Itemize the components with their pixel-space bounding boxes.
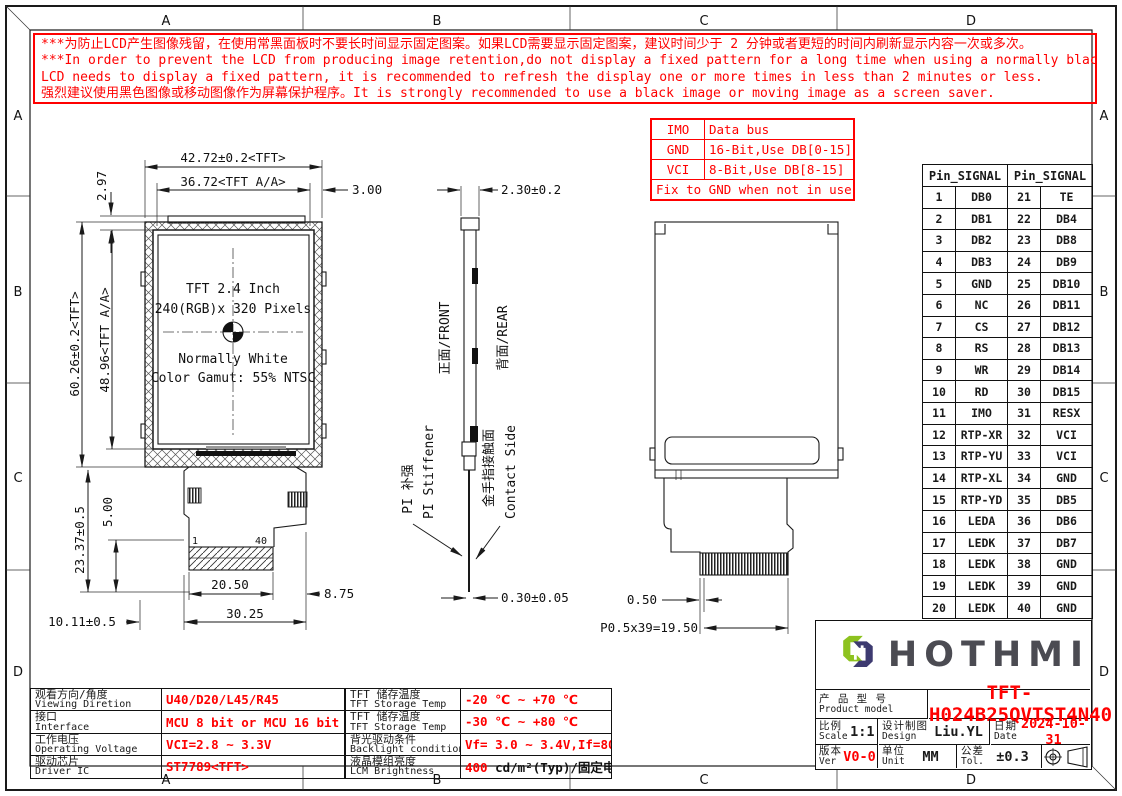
dim-width-tft: 42.72±0.2<TFT> <box>180 150 285 165</box>
unit-cell: 单位 Unit MM <box>879 745 957 768</box>
pin-signal-cell: DB7 <box>1041 532 1093 554</box>
tolerance-value: ±0.3 <box>984 749 1041 765</box>
pin-signal-cell: DB6 <box>1041 510 1093 532</box>
table-row: 3 DB2 23 DB8 <box>923 230 1093 252</box>
pin-signal-cell: LEDK <box>956 532 1008 554</box>
product-label-en: Product model <box>819 705 893 715</box>
spec-label-en: Viewing Diretion <box>35 700 157 710</box>
version-value: V0-0 <box>842 749 877 765</box>
pin-signal-cell: DB14 <box>1041 359 1093 381</box>
spec-label-en: TFT Storage Temp <box>350 723 456 733</box>
pin-number-cell: 28 <box>1008 338 1041 360</box>
warning-line: ***为防止LCD产生图像残留，在使用常黑面板时不要长时间显示固定图案。如果LC… <box>41 37 1089 53</box>
pin-number-cell: 35 <box>1008 489 1041 511</box>
pin-signal-cell: LEDK <box>956 575 1008 597</box>
design-cell: 设计制图 Design Liu.YL <box>879 719 990 745</box>
pin-number-cell: 31 <box>1008 402 1041 424</box>
spec-value-red: 400 <box>465 760 488 775</box>
spec-label-cn: TFT 储存温度 <box>350 711 456 722</box>
zone-label-right-b: B <box>1100 285 1109 300</box>
pin-signal-cell: VCI <box>1041 424 1093 446</box>
spec-label-cell: 观看方向/角度 Viewing Diretion <box>31 689 162 711</box>
pin-number-cell: 8 <box>923 338 956 360</box>
zone-label-top-c: C <box>699 14 708 29</box>
design-label-en: Design <box>882 732 928 742</box>
date-cell: 日期 Date 2024-10-31 <box>991 719 1090 745</box>
imo-footer-cell: Fix to GND when not in use. <box>651 180 854 201</box>
pin-number-cell: 32 <box>1008 424 1041 446</box>
spec-value-black: cd/m²(Typ)/固定电流测试 <box>488 760 612 775</box>
pin-number-cell: 10 <box>923 381 956 403</box>
pin-number-cell: 39 <box>1008 575 1041 597</box>
dim-connector-offset: 5.00 <box>100 497 115 527</box>
pin-signal-cell: RS <box>956 338 1008 360</box>
pin-number-cell: 26 <box>1008 294 1041 316</box>
version-label-en: Ver <box>819 757 842 767</box>
table-row: TFT 储存温度 TFT Storage Temp -30 ℃ ~ +80 ℃ <box>346 711 612 733</box>
warning-line: LCD needs to display a fixed pattern, it… <box>41 70 1089 86</box>
projection-symbol-cell <box>1043 745 1090 768</box>
front-view: TFT 2.4 Inch 240(RGB)x 320 Pixels Normal… <box>141 216 326 570</box>
pin-signal-cell: LEDK <box>956 554 1008 576</box>
engineering-drawing-page: { "colors": {"red": "#ff0000", "line": "… <box>0 0 1122 796</box>
table-row: 12 RTP-XR 32 VCI <box>923 424 1093 446</box>
pin-signal-cell: GND <box>1041 467 1093 489</box>
pin-number-cell: 18 <box>923 554 956 576</box>
dim-fpc-thickness: 0.30±0.05 <box>501 590 569 605</box>
pin-table-header-left: Pin_SIGNAL <box>923 165 1008 187</box>
dim-connector-width: 20.50 <box>211 577 249 592</box>
dim-pin-pitch: 0.50 <box>627 592 657 607</box>
pin-first-label: 1 <box>192 536 198 547</box>
table-row: 工作电压 Operating Voltage VCI=2.8 ~ 3.3V <box>31 733 345 755</box>
pin-signal-cell: WR <box>956 359 1008 381</box>
zone-label-left-a: A <box>14 109 23 124</box>
spec-value-cell: ST7789<TFT> <box>162 756 345 778</box>
pin-signal-cell: RTP-XR <box>956 424 1008 446</box>
zone-label-top-d: D <box>966 14 976 29</box>
version-cell: 版本 Ver V0-0 <box>816 745 878 768</box>
spec-value-cell: U40/D20/L45/R45 <box>162 689 345 711</box>
pin-number-cell: 21 <box>1008 187 1041 209</box>
pin-signal-cell: DB0 <box>956 187 1008 209</box>
table-row: 15 RTP-YD 35 DB5 <box>923 489 1093 511</box>
zone-label-right-c: C <box>1099 471 1108 486</box>
pin-number-cell: 20 <box>923 597 956 619</box>
table-row: 液晶模组亮度 LCM Brightness 400 cd/m²(Typ)/固定电… <box>346 756 612 778</box>
pin-signal-cell: VCI <box>1041 446 1093 468</box>
table-row: 9 WR 29 DB14 <box>923 359 1093 381</box>
pin-signal-cell: RTP-XL <box>956 467 1008 489</box>
date-label-en: Date <box>994 732 1017 742</box>
pin-signal-cell: DB4 <box>1041 208 1093 230</box>
pin-number-cell: 15 <box>923 489 956 511</box>
pin-number-cell: 36 <box>1008 510 1041 532</box>
pi-stiffener-label-cn: PI 补强 <box>401 464 416 513</box>
imo-databus-table: IMO Data bus GND 16-Bit,Use DB[0-15] VCI… <box>650 118 855 201</box>
spec-label-cell: 背光驱动条件 Backlight conditions <box>346 733 461 755</box>
tolerance-label-en: Tol. <box>961 757 984 767</box>
pin-signal-cell: RESX <box>1041 402 1093 424</box>
dim-top-margin: 2.97 <box>94 171 109 201</box>
spec-value-cell: -20 ℃ ~ +70 ℃ <box>461 689 612 711</box>
product-label-cn: 产 品 型 号 <box>819 694 893 705</box>
table-row: 11 IMO 31 RESX <box>923 402 1093 424</box>
pin-number-cell: 12 <box>923 424 956 446</box>
screen-spec-line: Color Gamut: 55% NTSC <box>151 371 315 386</box>
table-row: 接口 Interface MCU 8 bit or MCU 16 bit <box>31 711 345 733</box>
spec-label-cn: 接口 <box>35 711 157 722</box>
pin-signal-cell: GND <box>1041 597 1093 619</box>
table-row: 1 DB0 21 TE <box>923 187 1093 209</box>
dim-thickness: 2.30±0.2 <box>501 182 561 197</box>
imo-value-cell: 8-Bit,Use DB[8-15] <box>705 160 855 180</box>
pin-signal-cell: DB11 <box>1041 294 1093 316</box>
imo-key-cell: IMO <box>651 119 705 140</box>
designer-value: Liu.YL <box>928 724 989 740</box>
table-row: 10 RD 30 DB15 <box>923 381 1093 403</box>
pi-stiffener-label-en: PI Stiffener <box>422 425 437 519</box>
pin-signal-cell: DB9 <box>1041 251 1093 273</box>
spec-value-cell: 400 cd/m²(Typ)/固定电流测试 <box>461 756 612 778</box>
table-row: 2 DB1 22 DB4 <box>923 208 1093 230</box>
zone-label-right-d: D <box>1099 665 1109 680</box>
pin-number-cell: 1 <box>923 187 956 209</box>
pin-number-cell: 17 <box>923 532 956 554</box>
table-row: 7 CS 27 DB12 <box>923 316 1093 338</box>
contact-side-label-en: Contact Side <box>504 425 519 519</box>
brand-name: HOTHMI <box>888 635 1090 675</box>
pin-number-cell: 3 <box>923 230 956 252</box>
table-row: 4 DB3 24 DB9 <box>923 251 1093 273</box>
scale-cell: 比例 Scale 1:1 <box>816 719 878 745</box>
pin-number-cell: 40 <box>1008 597 1041 619</box>
third-angle-projection-icon <box>1044 746 1090 768</box>
table-row: Fix to GND when not in use. <box>651 180 854 201</box>
screen-spec-line: TFT 2.4 Inch <box>186 282 280 297</box>
contact-side-label-cn: 金手指接触面 <box>481 429 497 507</box>
spec-table-left: 观看方向/角度 Viewing Diretion U40/D20/L45/R45… <box>30 688 345 779</box>
unit-value: MM <box>905 749 956 765</box>
pin-number-cell: 22 <box>1008 208 1041 230</box>
rear-view: 0.50 P0.5x39=19.50 <box>600 222 843 635</box>
pin-number-cell: 34 <box>1008 467 1041 489</box>
table-row: VCI 8-Bit,Use DB[8-15] <box>651 160 854 180</box>
pin-number-cell: 23 <box>1008 230 1041 252</box>
table-row: 17 LEDK 37 DB7 <box>923 532 1093 554</box>
dim-height-tft: 60.26±0.2<TFT> <box>67 291 82 396</box>
unit-label-en: Unit <box>882 757 905 767</box>
spec-value-cell: MCU 8 bit or MCU 16 bit <box>162 711 345 733</box>
spec-value-red: Vf= 3.0 ~ 3.4V,If=80mA <box>465 737 612 752</box>
dim-flex-width: 30.25 <box>226 606 264 621</box>
imo-key-cell: GND <box>651 140 705 160</box>
pin-signal-cell: TE <box>1041 187 1093 209</box>
table-row: GND 16-Bit,Use DB[0-15] <box>651 140 854 160</box>
pin-number-cell: 25 <box>1008 273 1041 295</box>
spec-label-cell: 工作电压 Operating Voltage <box>31 733 162 755</box>
zone-label-left-c: C <box>13 471 22 486</box>
spec-value-red: -20 ℃ ~ +70 ℃ <box>465 692 578 707</box>
table-row: TFT 储存温度 TFT Storage Temp -20 ℃ ~ +70 ℃ <box>346 689 612 711</box>
pin-signal-cell: DB15 <box>1041 381 1093 403</box>
pin-number-cell: 33 <box>1008 446 1041 468</box>
imo-value-cell: 16-Bit,Use DB[0-15] <box>705 140 855 160</box>
logo-row: HOTHMI <box>816 621 1090 690</box>
product-label-cell: 产 品 型 号 Product model <box>816 690 928 719</box>
scale-value: 1:1 <box>848 724 877 740</box>
table-row: 8 RS 28 DB13 <box>923 338 1093 360</box>
spec-label-cell: TFT 储存温度 TFT Storage Temp <box>346 711 461 733</box>
pin-signal-cell: RTP-YU <box>956 446 1008 468</box>
table-header-row: Pin_SIGNAL Pin_SIGNAL <box>923 165 1093 187</box>
pin-signal-cell: LEDA <box>956 510 1008 532</box>
pin-signal-cell: LEDK <box>956 597 1008 619</box>
pin-number-cell: 27 <box>1008 316 1041 338</box>
table-row: 19 LEDK 39 GND <box>923 575 1093 597</box>
spec-value-red: -30 ℃ ~ +80 ℃ <box>465 714 578 729</box>
screen-spec-line: 240(RGB)x 320 Pixels <box>155 302 312 317</box>
table-row: 14 RTP-XL 34 GND <box>923 467 1093 489</box>
spec-value-cell: -30 ℃ ~ +80 ℃ <box>461 711 612 733</box>
pin-number-cell: 16 <box>923 510 956 532</box>
pin-signal-cell: DB12 <box>1041 316 1093 338</box>
zone-label-bottom-c: C <box>699 773 708 788</box>
rear-face-label: 背面/REAR <box>496 305 511 370</box>
pin-signal-cell: GND <box>1041 554 1093 576</box>
table-row: 观看方向/角度 Viewing Diretion U40/D20/L45/R45 <box>31 689 345 711</box>
table-row: 背光驱动条件 Backlight conditions Vf= 3.0 ~ 3.… <box>346 733 612 755</box>
pin-signal-cell: CS <box>956 316 1008 338</box>
table-row: 5 GND 25 DB10 <box>923 273 1093 295</box>
pin-number-cell: 37 <box>1008 532 1041 554</box>
table-row: IMO Data bus <box>651 119 854 140</box>
spec-label-en: TFT Storage Temp <box>350 700 456 710</box>
imo-value-cell: Data bus <box>705 119 855 140</box>
pin-number-cell: 24 <box>1008 251 1041 273</box>
warning-line: 强烈建议使用黑色图像或移动图像作为屏幕保护程序。It is strongly r… <box>41 86 1089 102</box>
table-row: 驱动芯片 Driver IC ST7789<TFT> <box>31 756 345 778</box>
pin-number-cell: 7 <box>923 316 956 338</box>
pin-signal-cell: DB1 <box>956 208 1008 230</box>
dim-width-aa: 36.72<TFT A/A> <box>180 174 285 189</box>
spec-label-cell: 接口 Interface <box>31 711 162 733</box>
pin-signal-cell: DB3 <box>956 251 1008 273</box>
table-row: 18 LEDK 38 GND <box>923 554 1093 576</box>
front-face-label: 正面/FRONT <box>438 301 453 374</box>
pin-signal-cell: RTP-YD <box>956 489 1008 511</box>
spec-label-en: LCM Brightness <box>350 767 456 777</box>
pin-signal-cell: DB13 <box>1041 338 1093 360</box>
zone-label-top-a: A <box>162 14 171 29</box>
warning-line: ***In order to prevent the LCD from prod… <box>41 53 1089 69</box>
spec-value-cell: Vf= 3.0 ~ 3.4V,If=80mA <box>461 733 612 755</box>
pin-signal-cell: GND <box>1041 575 1093 597</box>
pin-number-cell: 4 <box>923 251 956 273</box>
pin-number-cell: 11 <box>923 402 956 424</box>
hothmi-logo-icon <box>838 625 878 685</box>
zone-label-left-d: D <box>13 665 23 680</box>
pin-number-cell: 5 <box>923 273 956 295</box>
pin-signal-cell: DB8 <box>1041 230 1093 252</box>
side-view: 2.30±0.2 正面/FRONT 背面/REAR PI 补强 PI Stiff… <box>401 182 569 605</box>
spec-label-en: Operating Voltage <box>35 745 157 755</box>
pin-signal-cell: NC <box>956 294 1008 316</box>
spec-label-en: Backlight conditions <box>350 745 456 755</box>
pin-number-cell: 19 <box>923 575 956 597</box>
imo-key-cell: VCI <box>651 160 705 180</box>
zone-label-top-b: B <box>433 14 442 29</box>
pin-number-cell: 13 <box>923 446 956 468</box>
spec-label-cell: 液晶模组亮度 LCM Brightness <box>346 756 461 778</box>
dim-bottom-left: 10.11±0.5 <box>48 614 116 629</box>
pin-number-cell: 14 <box>923 467 956 489</box>
pin-signal-cell: DB2 <box>956 230 1008 252</box>
dim-connector-right: 8.75 <box>324 586 354 601</box>
pin-last-label: 40 <box>255 536 267 547</box>
dim-pitch-total: P0.5x39=19.50 <box>600 620 698 635</box>
spec-label-en: Interface <box>35 723 157 733</box>
pin-signal-table: Pin_SIGNAL Pin_SIGNAL 1 DB0 21 TE 2 DB1 … <box>922 164 1093 619</box>
pin-number-cell: 29 <box>1008 359 1041 381</box>
pin-signal-cell: IMO <box>956 402 1008 424</box>
pin-number-cell: 38 <box>1008 554 1041 576</box>
pin-signal-cell: RD <box>956 381 1008 403</box>
dim-tail-height: 23.37±0.5 <box>72 506 87 574</box>
pin-signal-cell: DB10 <box>1041 273 1093 295</box>
pin-signal-cell: DB5 <box>1041 489 1093 511</box>
pin-number-cell: 6 <box>923 294 956 316</box>
dim-height-aa: 48.96<TFT A/A> <box>97 287 112 392</box>
image-retention-warning: ***为防止LCD产生图像残留，在使用常黑面板时不要长时间显示固定图案。如果LC… <box>33 33 1097 104</box>
screen-spec-line: Normally White <box>178 352 288 367</box>
pin-table-header-right: Pin_SIGNAL <box>1008 165 1093 187</box>
table-row: 6 NC 26 DB11 <box>923 294 1093 316</box>
scale-label-en: Scale <box>819 732 848 742</box>
table-row: 13 RTP-YU 33 VCI <box>923 446 1093 468</box>
spec-label-en: Driver IC <box>35 767 157 777</box>
table-row: 16 LEDA 36 DB6 <box>923 510 1093 532</box>
spec-table-middle: TFT 储存温度 TFT Storage Temp -20 ℃ ~ +70 ℃ … <box>345 688 612 779</box>
pin-number-cell: 2 <box>923 208 956 230</box>
zone-label-bottom-d: D <box>966 773 976 788</box>
zone-label-left-b: B <box>14 285 23 300</box>
zone-label-right-a: A <box>1100 109 1109 124</box>
pin-number-cell: 9 <box>923 359 956 381</box>
table-row: 20 LEDK 40 GND <box>923 597 1093 619</box>
spec-label-cell: 驱动芯片 Driver IC <box>31 756 162 778</box>
title-block: HOTHMI 产 品 型 号 Product model TFT-H024B25… <box>815 620 1092 770</box>
spec-label-cell: TFT 储存温度 TFT Storage Temp <box>346 689 461 711</box>
pin-signal-cell: GND <box>956 273 1008 295</box>
date-value: 2024-10-31 <box>1017 716 1090 748</box>
tolerance-cell: 公差 Tol. ±0.3 <box>958 745 1042 768</box>
spec-value-cell: VCI=2.8 ~ 3.3V <box>162 733 345 755</box>
dim-right-margin: 3.00 <box>352 182 382 197</box>
pin-number-cell: 30 <box>1008 381 1041 403</box>
